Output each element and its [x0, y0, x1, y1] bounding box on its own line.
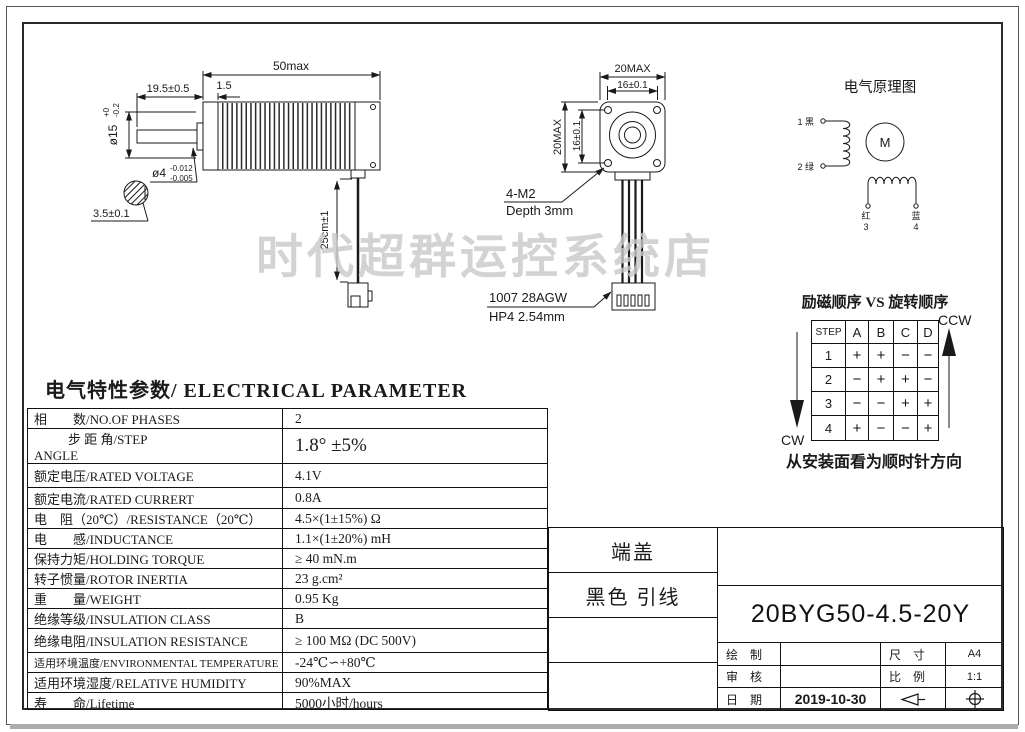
seq-cell: −: [869, 392, 894, 416]
part-number: 20BYG50-4.5-20Y: [717, 585, 1004, 643]
shaft-section-hatched-circle: [124, 181, 148, 205]
schematic-title: 电气原理图: [844, 79, 917, 96]
seq-cell: −: [846, 368, 869, 392]
param-label-line1: 步 距 角/STEP: [34, 429, 282, 448]
dim-front-plate: 1.5: [216, 80, 231, 92]
date-value: 2019-10-30: [780, 687, 881, 711]
seq-cell: +: [918, 416, 938, 440]
table-row: 保持力矩/HOLDING TORQUE ≥ 40 mN.m: [28, 549, 547, 569]
param-value: B: [283, 609, 547, 628]
seq-cell: +: [869, 368, 894, 392]
drawn-value-cell: [780, 642, 881, 666]
checked-label: 审 核: [717, 665, 781, 688]
table-row: 相 数/NO.OF PHASES 2: [28, 409, 547, 429]
projection-cone-cell: [880, 687, 946, 711]
seq-cell: +: [869, 344, 894, 368]
table-row: 额定电压/RATED VOLTAGE 4.1V: [28, 464, 547, 488]
dim-width: 20MAX: [614, 63, 651, 75]
table-row: 绝缘电阻/INSULATION RESISTANCE ≥ 100 MΩ (DC …: [28, 629, 547, 653]
table-row: 步 距 角/STEP ANGLE 1.8° ±5%: [28, 429, 547, 464]
sequence-note: 从安装面看为顺时针方向: [786, 448, 986, 472]
param-label: 额定电压/RATED VOLTAGE: [28, 464, 283, 487]
param-value: ≥ 100 MΩ (DC 500V): [283, 629, 547, 652]
ccw-arrow-icon: [942, 328, 956, 356]
param-label: 绝缘电阻/INSULATION RESISTANCE: [28, 629, 283, 652]
seq-cell: −: [894, 344, 918, 368]
seq-cell: −: [918, 344, 938, 368]
cw-label: CW: [781, 432, 805, 448]
electrical-parameter-table: 相 数/NO.OF PHASES 2 步 距 角/STEP ANGLE 1.8°…: [27, 408, 548, 710]
drawn-label: 绘 制: [717, 642, 781, 666]
seq-cell: +: [894, 392, 918, 416]
table-row: 重 量/WEIGHT 0.95 Kg: [28, 589, 547, 609]
dim-height: 20MAX: [552, 118, 564, 155]
table-row: 电 感/INDUCTANCE 1.1×(1±20%) mH: [28, 529, 547, 549]
lead3-number-label: 3: [863, 222, 868, 232]
param-value: 0.95 Kg: [283, 589, 547, 608]
table-row: 适用环境温度/ENVIRONMENTAL TEMPERATURE -24℃∽+8…: [28, 653, 547, 673]
param-value: 4.1V: [283, 464, 547, 487]
seq-header-step: STEP: [812, 321, 846, 344]
param-value: 1.1×(1±20%) mH: [283, 529, 547, 548]
seq-header-c: C: [894, 321, 918, 344]
electrical-schematic: 电气原理图 1 黑 2 绿 M 红 3 蓝 4: [797, 79, 920, 232]
callout-screws-line1: 4-M2: [506, 186, 536, 201]
seq-cell: +: [894, 368, 918, 392]
table-row: 电 阻（20℃）/RESISTANCE（20℃） 4.5×(1±15%) Ω: [28, 509, 547, 529]
svg-text:ø15: ø15: [106, 124, 120, 145]
title-block-end-cap-cell: 端盖: [548, 527, 718, 573]
sequence-table-title: 励磁顺序 VS 旋转顺序: [795, 291, 955, 312]
seq-cell: 3: [812, 392, 846, 416]
param-label: 绝缘等级/INSULATION CLASS: [28, 609, 283, 628]
title-block-empty-cell: [548, 662, 718, 711]
param-value: 5000小时/hours: [283, 693, 547, 710]
dim-shaft-diameter: ø4: [152, 166, 166, 180]
step-sequence-table: STEP A B C D 1 + + − − 2 − + + − 3 − − +…: [811, 320, 939, 441]
scale-value: 1:1: [945, 665, 1004, 688]
scale-label: 比 例: [880, 665, 946, 688]
seq-cell: 1: [812, 344, 846, 368]
callout-screws-line2: Depth 3mm: [506, 203, 573, 218]
table-row: 转子惯量/ROTOR INERTIA 23 g.cm²: [28, 569, 547, 589]
param-value: 2: [283, 409, 547, 428]
checked-value-cell: [780, 665, 881, 688]
title-block-lead-wire-cell: 黑色 引线: [548, 572, 718, 618]
callout-wire-line2: HP4 2.54mm: [489, 309, 565, 324]
first-angle-projection-cone-icon: [900, 692, 926, 707]
lead2-label: 2 绿: [797, 161, 814, 172]
size-value: A4: [945, 642, 1004, 666]
table-row: 额定电流/RATED CURRERT 0.8A: [28, 488, 547, 509]
param-label-line2: ANGLE: [34, 448, 282, 464]
parameter-table-title: 电气特性参数/ ELECTRICAL PARAMETER: [45, 374, 467, 403]
projection-target-icon: [965, 689, 985, 709]
table-row: 寿 命/Lifetime 5000小时/hours: [28, 693, 547, 710]
param-label: 重 量/WEIGHT: [28, 589, 283, 608]
cw-arrow-icon: [790, 400, 804, 428]
lead4-number-label: 4: [913, 222, 918, 232]
param-label: 适用环境湿度/RELATIVE HUMIDITY: [28, 673, 283, 692]
param-label: 保持力矩/HOLDING TORQUE: [28, 549, 283, 568]
param-label: 电 感/INDUCTANCE: [28, 529, 283, 548]
param-label: 电 阻（20℃）/RESISTANCE（20℃）: [28, 509, 283, 528]
table-row: 适用环境湿度/RELATIVE HUMIDITY 90%MAX: [28, 673, 547, 693]
lead3-color-label: 红: [861, 210, 870, 221]
lead4-color-label: 蓝: [911, 210, 920, 221]
svg-text:-0.012: -0.012: [170, 164, 193, 173]
seq-cell: −: [869, 416, 894, 440]
ccw-label: CCW: [938, 312, 972, 328]
title-block-empty-cell: [548, 617, 718, 663]
size-label: 尺 寸: [880, 642, 946, 666]
param-label: 寿 命/Lifetime: [28, 693, 283, 710]
callout-wire-line1: 1007 28AGW: [489, 290, 568, 305]
dim-50max: 50max: [273, 59, 309, 73]
dim-shaft-length: 19.5±0.5: [147, 83, 190, 95]
svg-text:+0: +0: [102, 107, 111, 117]
seq-cell: −: [846, 392, 869, 416]
seq-cell: −: [918, 368, 938, 392]
seq-header-a: A: [846, 321, 869, 344]
motor-side-view: 50max 19.5±0.5 1.5 ø15 +0 -0.2 ø4 -0.012…: [91, 59, 380, 307]
param-value: -24℃∽+80℃: [283, 653, 547, 672]
dim-cable-length: 25cm±1: [319, 210, 331, 249]
seq-cell: 4: [812, 416, 846, 440]
param-label: 相 数/NO.OF PHASES: [28, 409, 283, 428]
motor-front-view: 20MAX 16±0.1 20MAX 16±0.1 4-M2 Depth 3mm: [487, 63, 665, 324]
seq-cell: +: [846, 416, 869, 440]
seq-cell: 2: [812, 368, 846, 392]
engineering-drawing-page: 50max 19.5±0.5 1.5 ø15 +0 -0.2 ø4 -0.012…: [0, 0, 1025, 732]
seq-cell: +: [846, 344, 869, 368]
svg-text:-0.2: -0.2: [112, 103, 121, 117]
param-label: 适用环境温度/ENVIRONMENTAL TEMPERATURE: [28, 653, 283, 672]
title-block-blank-cell: [717, 527, 1004, 586]
seq-cell: +: [918, 392, 938, 416]
param-label: 转子惯量/ROTOR INERTIA: [28, 569, 283, 588]
table-row: 绝缘等级/INSULATION CLASS B: [28, 609, 547, 629]
projection-target-cell: [945, 687, 1004, 711]
param-label: 步 距 角/STEP ANGLE: [28, 429, 283, 463]
param-value: ≥ 40 mN.m: [283, 549, 547, 568]
param-value: 23 g.cm²: [283, 569, 547, 588]
lead1-label: 1 黑: [797, 117, 814, 127]
motor-symbol-label: M: [880, 135, 891, 150]
param-value: 0.8A: [283, 488, 547, 508]
dim-hole-pitch-h: 16±0.1: [617, 80, 648, 91]
param-value: 90%MAX: [283, 673, 547, 692]
date-label: 日 期: [717, 687, 781, 711]
seq-cell: −: [894, 416, 918, 440]
dim-shaft-flat: 3.5±0.1: [93, 208, 130, 220]
dim-hole-pitch-v: 16±0.1: [572, 120, 583, 151]
dim-pilot-diameter: ø15 +0 -0.2: [102, 103, 121, 146]
seq-header-b: B: [869, 321, 894, 344]
seq-header-d: D: [918, 321, 938, 344]
param-value: 4.5×(1±15%) Ω: [283, 509, 547, 528]
param-label: 额定电流/RATED CURRERT: [28, 488, 283, 508]
param-value: 1.8° ±5%: [283, 429, 547, 463]
